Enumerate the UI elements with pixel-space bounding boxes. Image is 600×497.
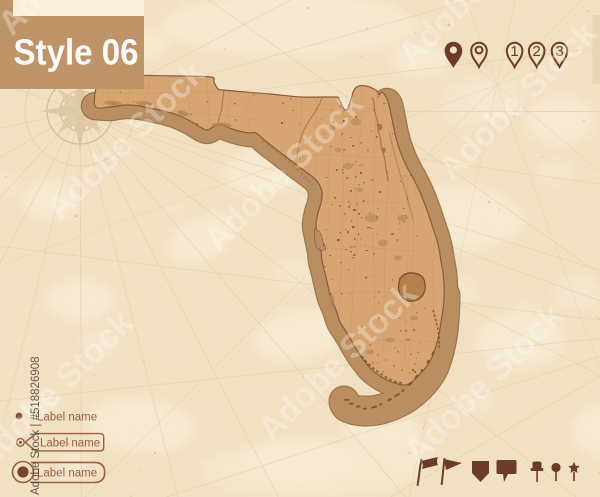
svg-text:Style 06: Style 06 (14, 32, 139, 73)
svg-text:Adobe Stock | #518826908: Adobe Stock | #518826908 (30, 356, 42, 495)
svg-text:1: 1 (510, 43, 518, 60)
svg-text:Label name: Label name (37, 468, 97, 480)
svg-text:Label name: Label name (40, 438, 100, 450)
